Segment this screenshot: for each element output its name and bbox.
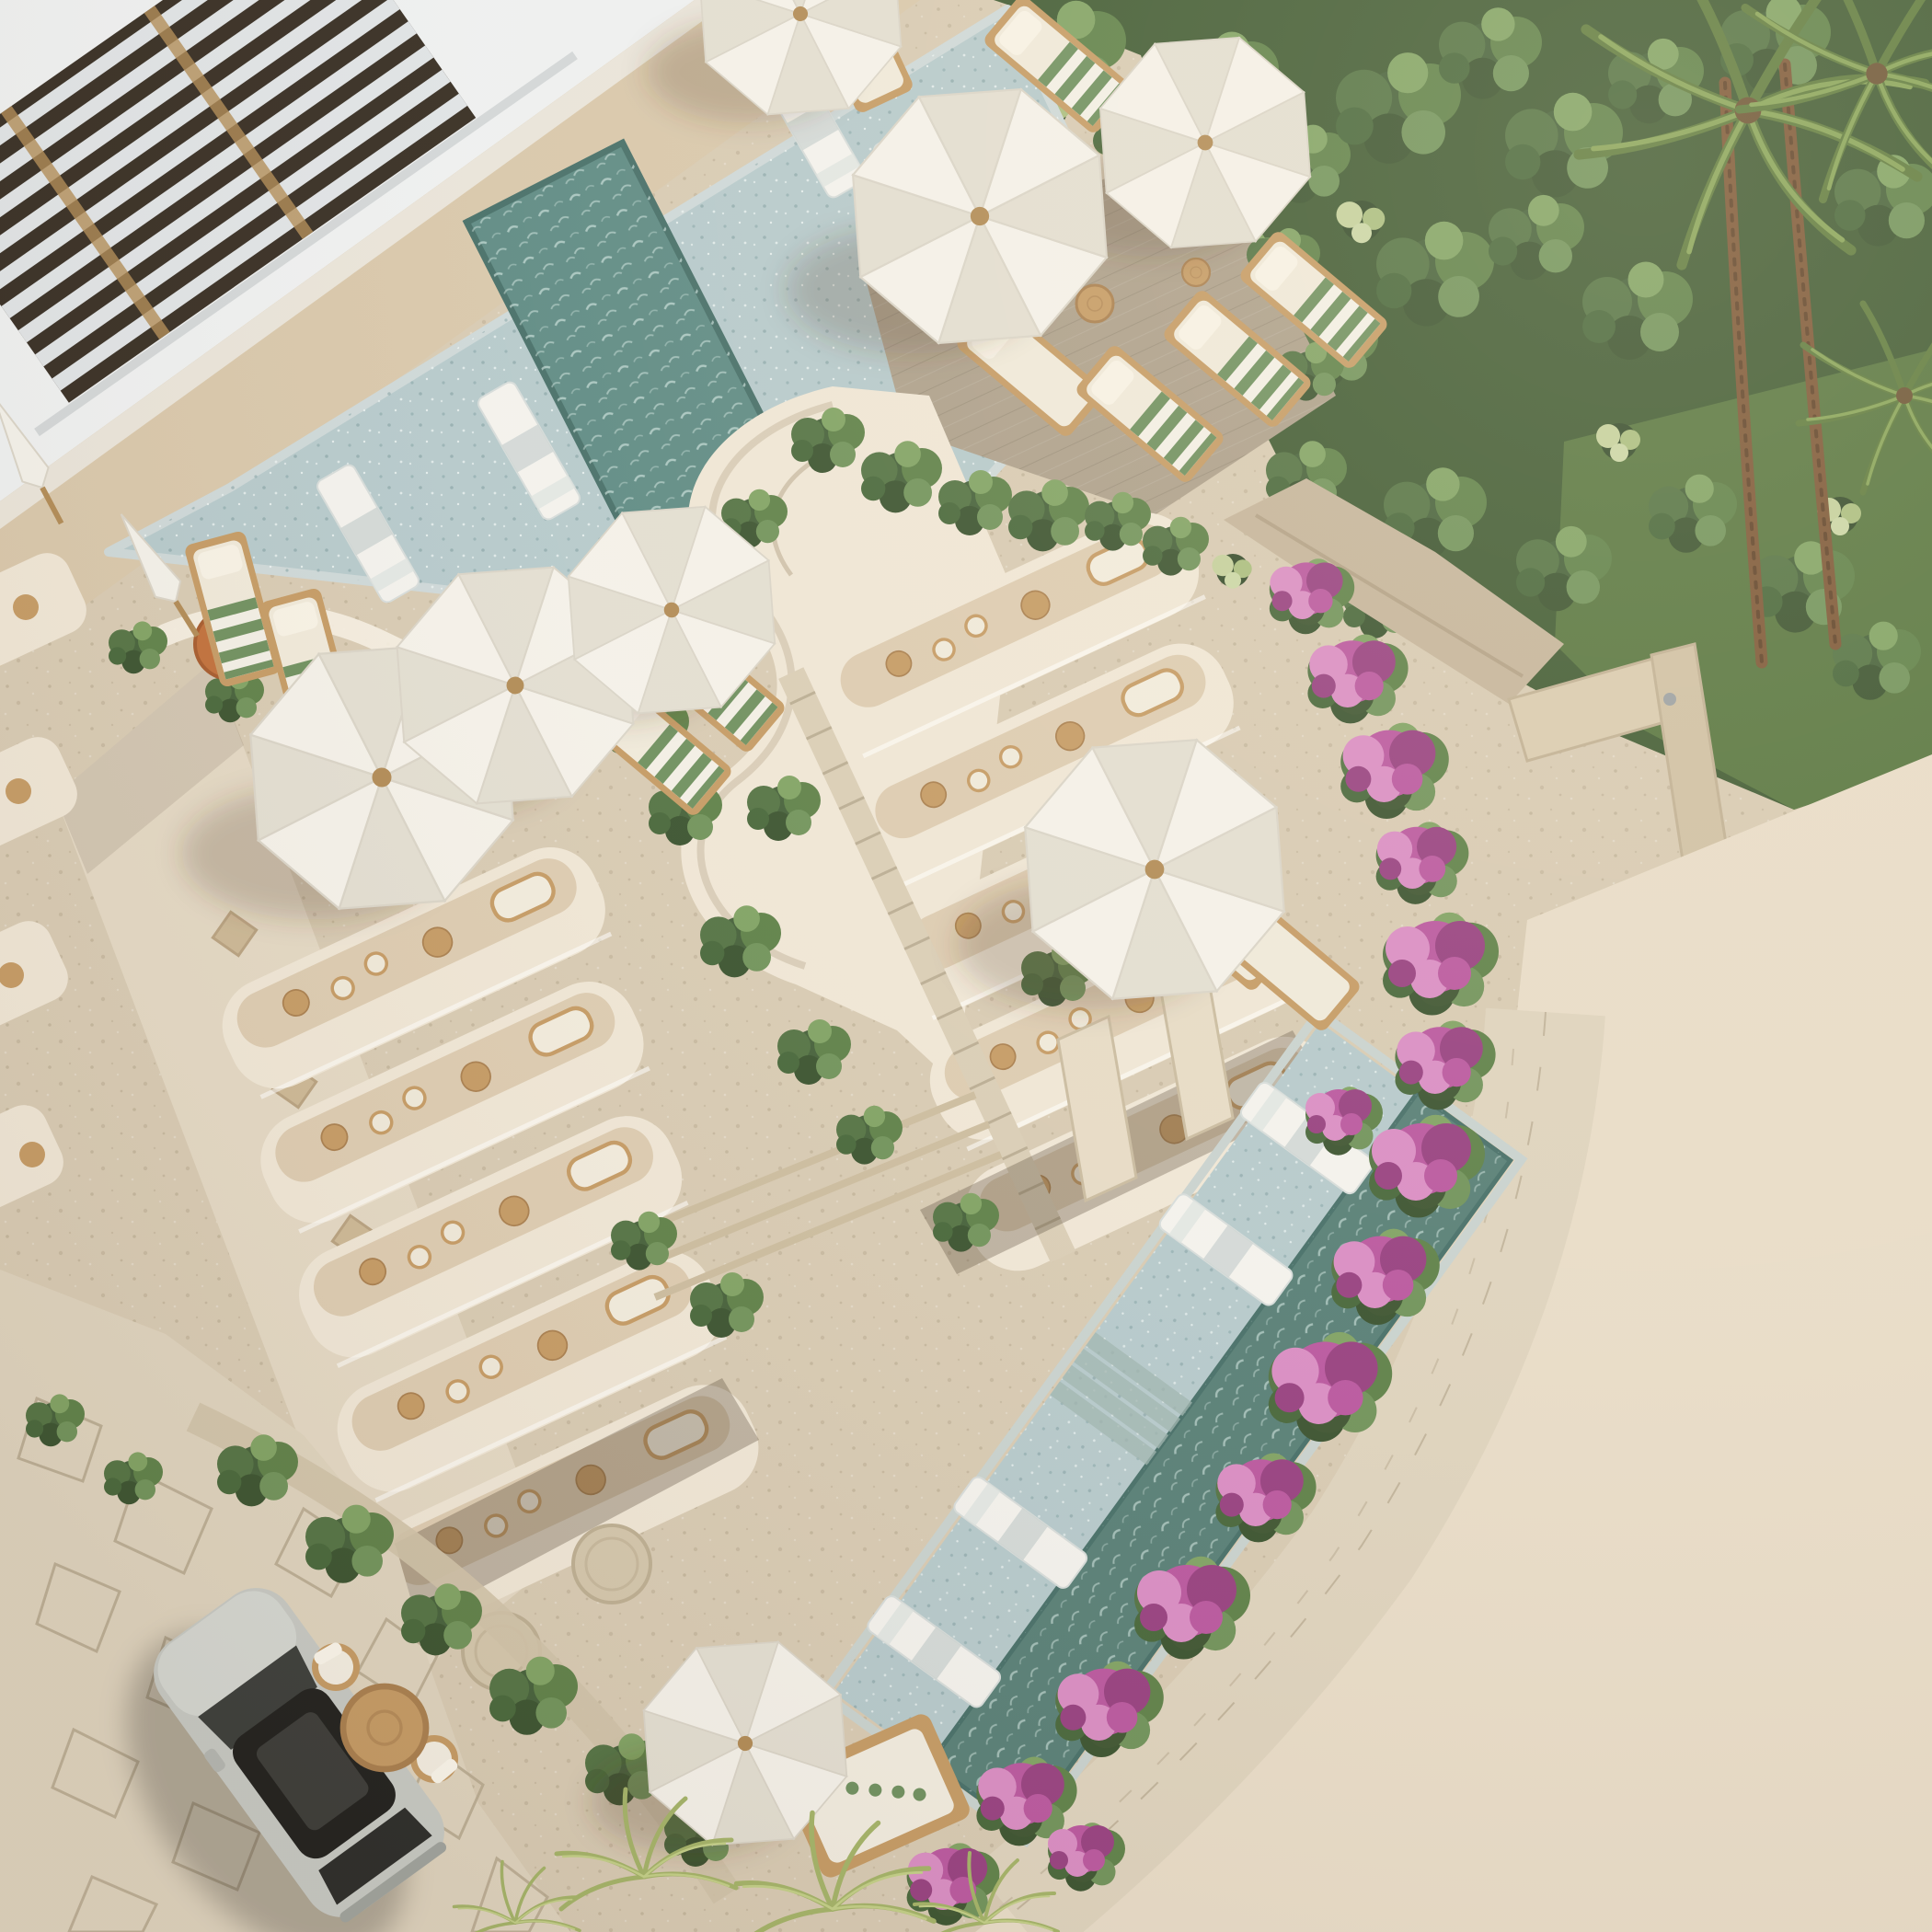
architectural-rendering: Aerial render - curved cream apartment r… bbox=[0, 0, 1932, 1932]
light-overlay bbox=[0, 0, 1932, 1932]
scene-svg bbox=[0, 0, 1932, 1932]
